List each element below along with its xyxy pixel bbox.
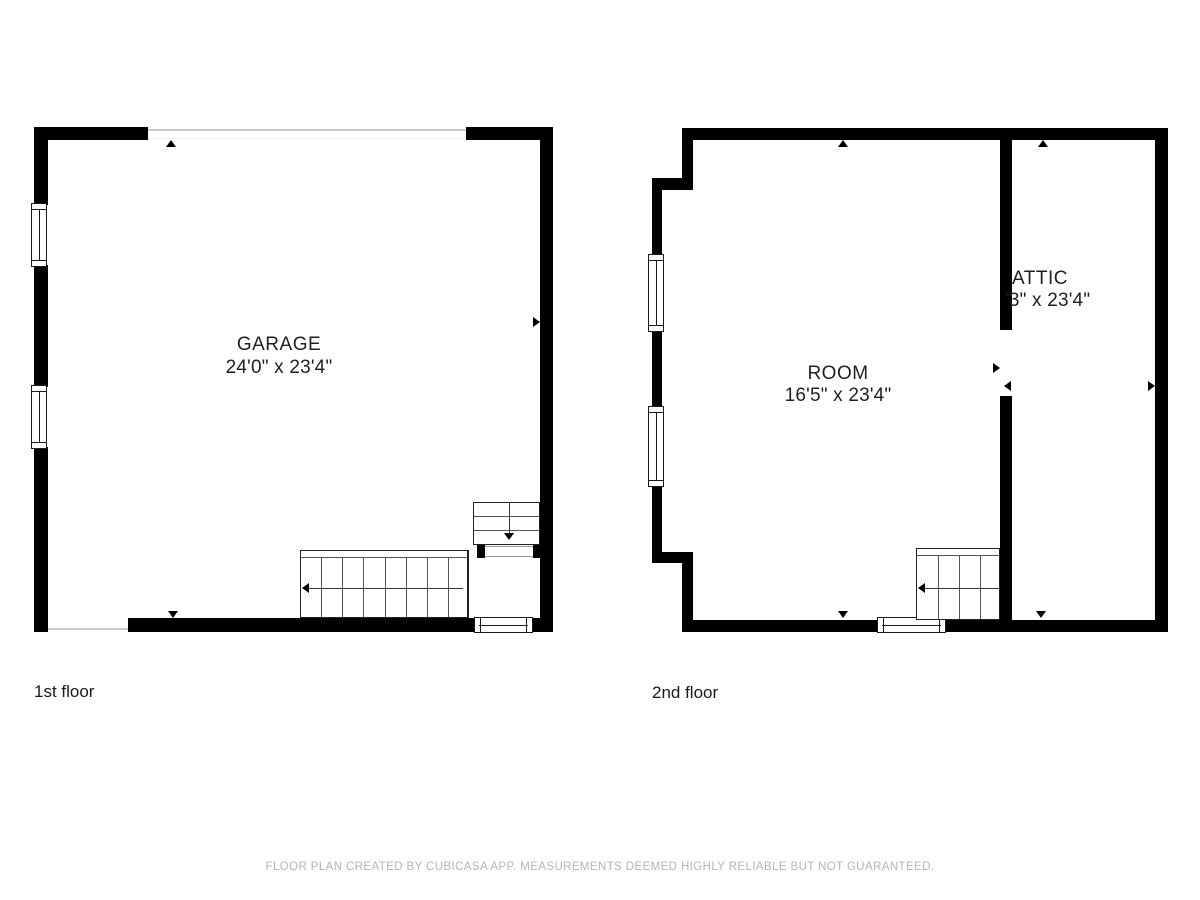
- stair-tread-line: [406, 557, 407, 617]
- window-cap-line: [32, 391, 46, 392]
- wall-right: [540, 127, 553, 632]
- staircase: [916, 548, 1000, 620]
- dimension-arrow-down-icon: [1036, 611, 1046, 618]
- dimension-arrow-right-icon: [993, 363, 1000, 373]
- stair-tread-line: [363, 557, 364, 617]
- staircase-lower-flight: [300, 550, 468, 618]
- dimension-arrow-left-icon: [1004, 381, 1011, 391]
- wall-left-bulge-segment: [652, 178, 662, 256]
- floor-label-2nd: 2nd floor: [652, 683, 718, 703]
- window: [648, 254, 664, 332]
- footer-disclaimer: FLOOR PLAN CREATED BY CUBICASA APP. MEAS…: [0, 861, 1200, 873]
- stair-direction-arrow: [918, 583, 925, 593]
- garage-door-inner-line: [148, 138, 466, 139]
- interior-wall-lower: [1000, 396, 1012, 622]
- window-cap-line: [649, 260, 663, 261]
- window-cap-line: [649, 325, 663, 326]
- wall-bottom-segment: [682, 620, 878, 632]
- door-opening-line: [48, 628, 128, 630]
- door-threshold-line: [485, 546, 533, 547]
- wall-bottom-segment: [945, 620, 1168, 632]
- door-threshold-line: [485, 556, 533, 557]
- dimension-arrow-down-icon: [838, 611, 848, 618]
- window-cap-line: [649, 412, 663, 413]
- garage-door-line: [148, 129, 466, 131]
- room-dimensions-room: 16'5" x 23'4": [738, 385, 938, 407]
- wall-left-segment: [34, 447, 48, 632]
- window-center-line: [39, 391, 40, 443]
- stair-tread-line: [385, 557, 386, 617]
- dimension-arrow-right-icon: [533, 317, 540, 327]
- stair-run-line: [509, 503, 510, 534]
- stair-tread-line: [448, 557, 449, 617]
- stair-tread-line: [980, 555, 981, 619]
- dimension-arrow-down-icon: [168, 611, 178, 618]
- window-center-line: [39, 209, 40, 261]
- stair-tread-line: [938, 555, 939, 619]
- stair-tread-line: [474, 516, 539, 517]
- stair-direction-arrow: [302, 583, 309, 593]
- window: [31, 385, 47, 449]
- door-jamb: [533, 545, 541, 558]
- stair-tread-line: [474, 530, 539, 531]
- dimension-arrow-up-icon: [1038, 140, 1048, 147]
- window-cap-line: [480, 618, 481, 632]
- stair-tread-line: [342, 557, 343, 617]
- stair-landing-edge: [468, 550, 469, 618]
- dimension-arrow-left-icon: [654, 363, 661, 373]
- window-cap-line: [939, 618, 940, 632]
- window-center-line: [882, 625, 941, 626]
- window-center-line: [656, 412, 657, 481]
- wall-left-bulge-segment: [652, 485, 662, 563]
- door-jamb: [477, 545, 485, 558]
- dimension-arrow-right-icon: [1148, 381, 1155, 391]
- wall-top-left-segment: [34, 127, 148, 140]
- dimension-arrow-up-icon: [166, 140, 176, 147]
- dimension-arrow-left-icon: [40, 317, 47, 327]
- staircase-upper-flight: [473, 502, 540, 545]
- room-dimensions-garage: 24'0" x 23'4": [179, 357, 379, 379]
- window-cap-line: [32, 260, 46, 261]
- room-dimensions-attic: '3" x 23'4": [1005, 290, 1090, 312]
- window: [31, 203, 47, 267]
- wall-top: [682, 128, 1168, 140]
- wall-bottom-segment: [128, 618, 475, 632]
- stair-direction-arrow: [504, 533, 514, 540]
- room-name-room: ROOM: [738, 363, 938, 385]
- window: [474, 617, 533, 633]
- wall-bottom-segment: [532, 618, 553, 632]
- stair-run-line: [307, 588, 463, 589]
- stair-run-line: [923, 588, 999, 589]
- stair-tread-line: [427, 557, 428, 617]
- window-cap-line: [526, 618, 527, 632]
- wall-left-lower: [682, 552, 693, 632]
- wall-bottom-segment: [34, 618, 48, 632]
- wall-right: [1155, 128, 1168, 632]
- window-cap-line: [32, 442, 46, 443]
- stair-stringer-line: [917, 555, 999, 556]
- window-cap-line: [883, 618, 884, 632]
- stair-stringer-line: [301, 557, 467, 558]
- room-name-garage: GARAGE: [179, 334, 379, 356]
- stair-tread-line: [321, 557, 322, 617]
- stair-tread-line: [959, 555, 960, 619]
- window-center-line: [479, 625, 528, 626]
- window-cap-line: [32, 209, 46, 210]
- window-center-line: [656, 260, 657, 326]
- floor-plan-canvas: GARAGE 24'0" x 23'4" 1st floor: [0, 0, 1200, 900]
- wall-left-segment: [34, 127, 48, 205]
- floor-label-1st: 1st floor: [34, 682, 94, 702]
- dimension-arrow-up-icon: [838, 140, 848, 147]
- window-cap-line: [649, 480, 663, 481]
- room-name-attic: ATTIC: [965, 268, 1115, 290]
- window: [648, 406, 664, 487]
